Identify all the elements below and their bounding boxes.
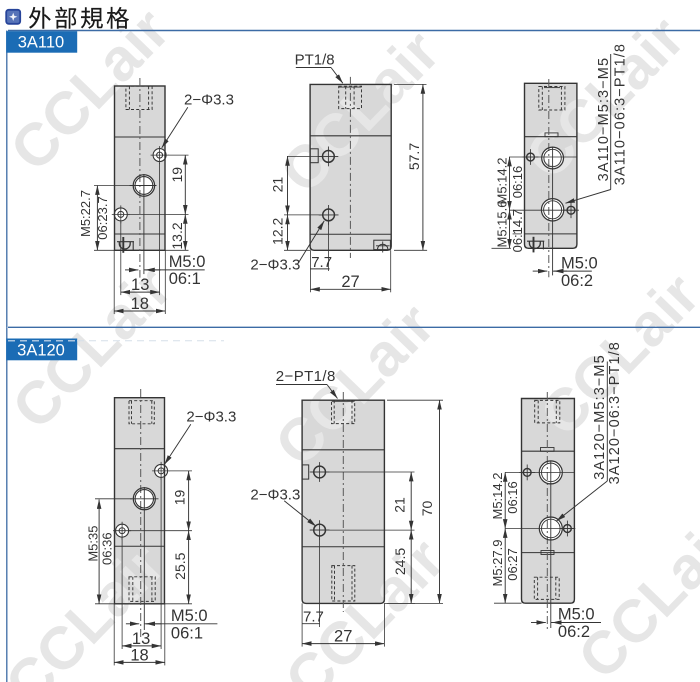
- svg-text:PT1/8: PT1/8: [295, 52, 335, 69]
- svg-text:06:2: 06:2: [561, 272, 593, 290]
- svg-text:7.7: 7.7: [303, 609, 324, 626]
- svg-text:M5:35: M5:35: [86, 526, 101, 562]
- svg-text:18: 18: [130, 646, 148, 664]
- svg-text:M5:22.7: M5:22.7: [78, 190, 93, 237]
- svg-text:06:23.7: 06:23.7: [95, 196, 110, 239]
- svg-text:06:36: 06:36: [100, 532, 115, 565]
- svg-text:3A110: 3A110: [18, 34, 65, 52]
- svg-text:27: 27: [334, 628, 352, 646]
- svg-text:13: 13: [131, 276, 149, 294]
- svg-text:25.5: 25.5: [172, 552, 188, 579]
- svg-text:27: 27: [341, 273, 359, 291]
- svg-text:06:16: 06:16: [505, 481, 520, 514]
- svg-text:12.2: 12.2: [270, 217, 286, 244]
- svg-text:21: 21: [392, 497, 408, 513]
- svg-text:06:2: 06:2: [558, 623, 590, 641]
- svg-text:2−Φ3.3: 2−Φ3.3: [184, 92, 234, 109]
- svg-text:18: 18: [131, 295, 149, 313]
- svg-text:13: 13: [132, 630, 150, 648]
- svg-text:57.7: 57.7: [406, 143, 422, 170]
- svg-text:2−PT1/8: 2−PT1/8: [276, 368, 336, 385]
- svg-text:2−Φ3.3: 2−Φ3.3: [250, 487, 300, 504]
- svg-text:M5:0: M5:0: [558, 606, 595, 624]
- svg-text:M5:27.9: M5:27.9: [490, 540, 505, 587]
- svg-text:13.2: 13.2: [169, 222, 185, 249]
- svg-text:2−Φ3.3: 2−Φ3.3: [186, 409, 236, 426]
- svg-text:21: 21: [269, 177, 285, 193]
- svg-text:24.5: 24.5: [392, 548, 408, 575]
- svg-text:06:16: 06:16: [510, 166, 525, 199]
- svg-text:06:14.7: 06:14.7: [510, 209, 525, 252]
- svg-text:7.7: 7.7: [311, 254, 332, 271]
- svg-text:19: 19: [169, 167, 185, 183]
- svg-text:06:1: 06:1: [171, 624, 203, 642]
- svg-text:06:1: 06:1: [169, 270, 201, 288]
- svg-text:3A120−M5:3−M5: 3A120−M5:3−M5: [592, 354, 608, 480]
- svg-text:M5:14.2: M5:14.2: [494, 158, 509, 205]
- svg-text:06:27: 06:27: [505, 548, 520, 581]
- svg-text:M5:0: M5:0: [171, 607, 208, 625]
- svg-text:3A110−06:3−PT1/8: 3A110−06:3−PT1/8: [613, 43, 629, 185]
- svg-text:M5:0: M5:0: [169, 253, 206, 271]
- svg-text:3A110−M5:3−M5: 3A110−M5:3−M5: [596, 57, 612, 181]
- svg-text:3A120: 3A120: [17, 341, 65, 359]
- svg-text:70: 70: [419, 501, 435, 517]
- svg-text:2−Φ3.3: 2−Φ3.3: [250, 257, 300, 274]
- svg-text:M5:14.2: M5:14.2: [490, 473, 505, 520]
- svg-text:M5:15.6: M5:15.6: [494, 201, 509, 248]
- svg-text:19: 19: [171, 490, 187, 506]
- svg-text:3A120−06:3−PT1/8: 3A120−06:3−PT1/8: [607, 341, 623, 484]
- svg-text:M5:0: M5:0: [561, 255, 598, 273]
